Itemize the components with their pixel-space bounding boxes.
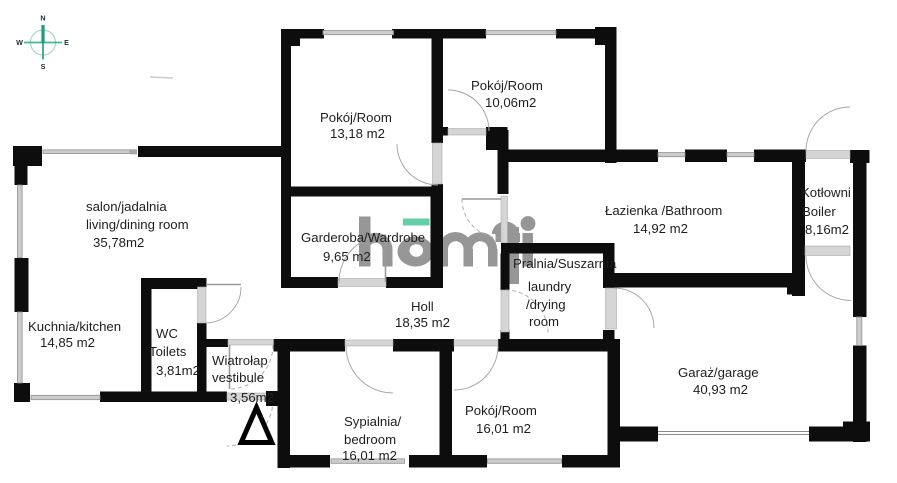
svg-text:Toilets: Toilets xyxy=(149,344,187,359)
svg-text:Sypialnia/: Sypialnia/ xyxy=(344,414,402,429)
svg-text:35,78m2: 35,78m2 xyxy=(93,235,144,250)
svg-text:8,16m2: 8,16m2 xyxy=(805,222,849,237)
svg-text:40,93 m2: 40,93 m2 xyxy=(693,382,748,397)
svg-text:13,18 m2: 13,18 m2 xyxy=(330,126,385,141)
svg-text:salon/jadalnia: salon/jadalnia xyxy=(86,199,167,214)
svg-text:14,85 m2: 14,85 m2 xyxy=(40,335,95,350)
svg-text:Garaż/garage: Garaż/garage xyxy=(678,365,759,380)
svg-text:10,06m2: 10,06m2 xyxy=(485,95,536,110)
svg-text:Łazienka /Bathroom: Łazienka /Bathroom xyxy=(605,203,722,218)
svg-text:Wiatrołap: Wiatrołap xyxy=(212,353,268,368)
svg-text:/drying: /drying xyxy=(526,297,566,312)
svg-text:Kotłowni: Kotłowni xyxy=(801,185,851,200)
svg-text:WC: WC xyxy=(156,326,178,341)
svg-text:Pokój/Room: Pokój/Room xyxy=(465,403,537,418)
svg-text:N: N xyxy=(40,14,45,23)
svg-text:S: S xyxy=(41,62,46,71)
svg-text:14,92 m2: 14,92 m2 xyxy=(633,221,688,236)
svg-text:E: E xyxy=(64,38,69,47)
svg-text:9,65 m2: 9,65 m2 xyxy=(323,249,371,264)
svg-text:18,35 m2: 18,35 m2 xyxy=(395,315,450,330)
svg-text:3,81m2: 3,81m2 xyxy=(156,363,200,378)
svg-text:Pokój/Room: Pokój/Room xyxy=(471,78,543,93)
svg-text:16,01 m2: 16,01 m2 xyxy=(342,448,397,463)
svg-text:Holl: Holl xyxy=(411,299,434,314)
svg-text:16,01 m2: 16,01 m2 xyxy=(476,421,531,436)
svg-text:laundry: laundry xyxy=(528,279,572,294)
svg-text:Pralnia/Suszarnia: Pralnia/Suszarnia xyxy=(513,256,617,271)
svg-text:Garderoba/Wardrobe: Garderoba/Wardrobe xyxy=(301,230,425,245)
svg-text:living/dining room: living/dining room xyxy=(86,217,189,232)
svg-text:3,56m2: 3,56m2 xyxy=(230,390,274,405)
svg-text:bedroom: bedroom xyxy=(344,432,396,447)
svg-text:vestibule: vestibule xyxy=(212,370,264,385)
svg-text:room: room xyxy=(529,314,559,329)
svg-text:W: W xyxy=(16,38,23,47)
svg-text:Pokój/Room: Pokój/Room xyxy=(320,110,392,125)
svg-text:Kuchnia/kitchen: Kuchnia/kitchen xyxy=(28,319,121,334)
svg-text:Boiler: Boiler xyxy=(802,204,836,219)
